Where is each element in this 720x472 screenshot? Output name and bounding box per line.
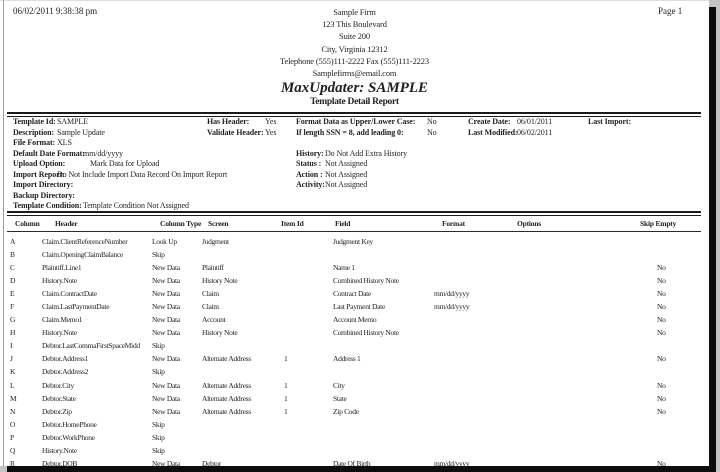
cell-column-letter: C [10,263,15,272]
cell-header: Claim.Memo1 [42,315,82,324]
info-backup-directory: Backup Directory: [13,191,75,200]
info-value: Template Condition Not Assigned [83,201,189,210]
firm-phone-fax: Telephone (555)111-2222 Fax (555)111-222… [0,55,709,67]
cell-column-letter: O [10,420,15,429]
cell-column-letter: H [10,328,15,337]
table-row: F Claim.LastPaymentDate New Data Claim L… [0,301,709,314]
info-value: Not Assigned [325,159,367,168]
table-row: R Debtor.DOB New Data Debtor Date Of Bir… [0,458,709,471]
info-label: Create Date: [468,117,517,126]
info-template-id: Template Id:SAMPLE [13,117,88,126]
info-label: Format Data as Upper/Lower Case: [296,117,427,126]
info-value: mm/dd/yyyy [83,149,123,158]
table-row: O Debtor.HomePhone Skip [0,419,709,432]
table-row: E Claim.ContractDate New Data Claim Cont… [0,288,709,301]
col-header-options: Options [517,219,541,228]
info-value: No [427,117,437,126]
info-label: Has Header: [207,117,265,126]
cell-screen: History Note [202,328,237,337]
cell-header: Debtor.State [42,394,76,403]
cell-header: Claim.OpeningClaimBalance [42,250,123,259]
cell-screen: Alternate Address [202,354,251,363]
cell-screen: Alternate Address [202,407,251,416]
info-label: History: [296,149,325,158]
cell-header: History.Note [42,446,77,455]
cell-screen: History Note [202,276,237,285]
cell-header: Debtor.Address2 [42,367,88,376]
info-value: 06/01/2011 [517,117,552,126]
info-label: Last Import: [588,117,631,126]
cell-field: Combined History Note [333,276,399,285]
table-row: A Claim.ClientReferenceNumber Look Up Ju… [0,236,709,249]
page-top-edge [0,0,709,1]
info-label: Validate Header: [207,128,265,137]
cell-column-letter: F [10,302,14,311]
cell-header: Debtor.WorkPhone [42,433,95,442]
info-has-header: Has Header:Yes [207,117,276,126]
table-row: L Debtor.City New Data Alternate Address… [0,380,709,393]
cell-field: Last Payment Date [333,302,385,311]
info-value: Do Not Include Import Data Record On Imp… [57,170,227,179]
table-row: J Debtor.Address1 New Data Alternate Add… [0,353,709,366]
cell-column-letter: E [10,289,14,298]
cell-column-type: New Data [152,328,180,337]
info-label: Status : [296,159,325,168]
col-header-header: Header [55,219,78,228]
info-upload-option: Upload Option:Mark Data for Upload [13,159,159,168]
info-template-condition: Template Condition:Template Condition No… [13,201,189,210]
cell-field: Combined History Note [333,328,399,337]
cell-header: Debtor.City [42,381,74,390]
cell-column-letter: I [10,341,12,350]
cell-column-type: New Data [152,394,180,403]
info-value: No [427,128,437,137]
cell-format: mm/dd/yyyy [434,289,469,298]
col-header-field: Field [335,219,350,228]
info-label: Last Modified: [468,128,517,137]
cell-field: Zip Code [333,407,359,416]
cell-column-type: New Data [152,381,180,390]
cell-header: History.Note [42,276,77,285]
table-row: G Claim.Memo1 New Data Account Account M… [0,314,709,327]
info-status: Status :Not Assigned [296,159,367,168]
info-value: 06/02/2011 [517,128,552,137]
cell-header: Claim.LastPaymentDate [42,302,109,311]
info-label: Backup Directory: [13,191,75,200]
cell-column-type: New Data [152,315,180,324]
cell-column-type: New Data [152,354,180,363]
cell-item-id: 1 [284,381,287,390]
info-label: Import Report: [13,170,57,179]
info-file-format: File Format:XLS [13,138,72,147]
firm-address-block: Sample Firm 123 This Boulevard Suite 200… [0,6,709,79]
cell-column-type: New Data [152,263,180,272]
cell-skip-empty: No [657,381,666,390]
divider-under-table-header [7,231,701,232]
info-label: If length SSN = 8, add leading 0: [296,128,427,137]
cell-column-letter: Q [10,446,15,455]
info-value: Yes [265,117,276,126]
cell-column-type: Look Up [152,237,177,246]
cell-header: Debtor.Zip [42,407,72,416]
cell-screen: Plaintiff [202,263,224,272]
info-ssn-leading-zero: If length SSN = 8, add leading 0:No [296,128,437,137]
info-value: Not Assigned [325,180,367,189]
table-row: B Claim.OpeningClaimBalance Skip [0,249,709,262]
cell-column-letter: K [10,367,15,376]
cell-column-type: Skip [152,341,165,350]
report-page: 06/02/2011 9:38:38 pm Page 1 Sample Firm… [0,0,709,466]
cell-format: mm/dd/yyyy [434,459,469,468]
info-last-import: Last Import: [588,117,631,126]
table-row: N Debtor.Zip New Data Alternate Address … [0,406,709,419]
cell-skip-empty: No [657,315,666,324]
cell-column-type: Skip [152,420,165,429]
cell-column-type: Skip [152,446,165,455]
cell-header: Debtor.DOB [42,459,77,468]
cell-item-id: 1 [284,407,287,416]
report-subtitle: Template Detail Report [0,97,709,107]
firm-address-line1: 123 This Boulevard [0,18,709,30]
info-create-date: Create Date:06/01/2011 [468,117,552,126]
firm-email: Samplefirms@email.com [0,67,709,79]
col-header-screen: Screen [208,219,228,228]
cell-header: History.Note [42,328,77,337]
cell-column-type: Skip [152,433,165,442]
cell-header: Debtor.HomePhone [42,420,97,429]
cell-column-letter: L [10,381,14,390]
cell-skip-empty: No [657,276,666,285]
template-column-table: A Claim.ClientReferenceNumber Look Up Ju… [0,236,709,471]
info-history: History:Do Not Add Extra History [296,149,407,158]
table-row: H History.Note New Data History Note Com… [0,327,709,340]
table-row: Q History.Note Skip [0,445,709,458]
cell-screen: Claim [202,302,219,311]
info-label: Activity: [296,180,325,189]
cell-column-letter: B [10,250,15,259]
cell-column-letter: P [10,433,14,442]
info-description: Description:Sample Update [13,128,105,137]
info-label: Action : [296,170,325,179]
table-row: P Debtor.WorkPhone Skip [0,432,709,445]
cell-column-type: New Data [152,289,180,298]
cell-skip-empty: No [657,407,666,416]
cell-screen: Account [202,315,225,324]
table-row: I Debtor.LastCommaFirstSpaceMidd Skip [0,340,709,353]
cell-header: Debtor.Address1 [42,354,88,363]
cell-screen: Alternate Address [202,381,251,390]
table-row: M Debtor.State New Data Alternate Addres… [0,393,709,406]
cell-column-letter: R [10,459,15,468]
info-label: Template Condition: [13,201,83,210]
cell-skip-empty: No [657,394,666,403]
cell-screen: Debtor [202,459,221,468]
cell-field: Judgment Key [333,237,373,246]
info-value: Yes [265,128,276,137]
cell-column-letter: G [10,315,15,324]
info-default-date-format: Default Date Format:mm/dd/yyyy [13,149,123,158]
cell-field: Date Of Birth [333,459,370,468]
cell-field: Name 1 [333,263,355,272]
info-value: Not Assigned [325,170,367,179]
cell-column-letter: M [10,394,16,403]
cell-skip-empty: No [657,302,666,311]
cell-column-type: Skip [152,250,165,259]
divider-above-table [7,211,701,216]
cell-screen: Claim [202,289,219,298]
cell-column-letter: J [10,354,13,363]
info-value: Do Not Add Extra History [325,149,407,158]
firm-city-state-zip: City, Virginia 12312 [0,43,709,55]
table-row: K Debtor.Address2 Skip [0,366,709,379]
info-label: Upload Option: [13,159,90,168]
info-validate-header: Validate Header:Yes [207,128,276,137]
info-label: Default Date Format: [13,149,83,158]
info-format-case: Format Data as Upper/Lower Case:No [296,117,437,126]
info-last-modified: Last Modified:06/02/2011 [468,128,552,137]
info-import-directory: Import Directory: [13,180,73,189]
cell-skip-empty: No [657,289,666,298]
cell-header: Claim.ClientReferenceNumber [42,237,127,246]
cell-column-letter: N [10,407,15,416]
cell-column-type: New Data [152,407,180,416]
info-import-report: Import Report:Do Not Include Import Data… [13,170,227,179]
cell-field: Contract Date [333,289,371,298]
col-header-skip-empty: Skip Empty [640,219,676,228]
cell-column-type: New Data [152,302,180,311]
cell-column-type: New Data [152,276,180,285]
col-header-column-type: Column Type [160,219,201,228]
cell-skip-empty: No [657,459,666,468]
cell-column-type: Skip [152,367,165,376]
info-value: SAMPLE [57,117,88,126]
cell-field: Account Memo [333,315,376,324]
cell-column-type: New Data [152,459,180,468]
info-value: XLS [57,138,72,147]
info-value: Sample Update [57,128,105,137]
info-label: Template Id: [13,117,57,126]
info-action: Action :Not Assigned [296,170,367,179]
firm-name: Sample Firm [0,6,709,18]
info-activity: Activity:Not Assigned [296,180,367,189]
cell-field: State [333,394,347,403]
cell-format: mm/dd/yyyy [434,302,469,311]
cell-skip-empty: No [657,354,666,363]
cell-field: City [333,381,345,390]
info-value: Mark Data for Upload [90,159,159,168]
table-row: D History.Note New Data History Note Com… [0,275,709,288]
cell-screen: Judgment [202,237,229,246]
info-label: Description: [13,128,57,137]
cell-column-letter: D [10,276,15,285]
cell-header: Debtor.LastCommaFirstSpaceMidd [42,341,140,350]
cell-skip-empty: No [657,263,666,272]
col-header-column: Column [15,219,40,228]
table-row: C Plaintiff.Line1 New Data Plaintiff Nam… [0,262,709,275]
cell-field: Address 1 [333,354,361,363]
report-title: MaxUpdater: SAMPLE [0,80,709,97]
col-header-item-id: Item Id [281,219,304,228]
col-header-format: Format [442,219,465,228]
info-label: Import Directory: [13,180,73,189]
cell-item-id: 1 [284,354,287,363]
info-label: File Format: [13,138,57,147]
cell-screen: Alternate Address [202,394,251,403]
cell-item-id: 1 [284,394,287,403]
cell-column-letter: A [10,237,15,246]
firm-address-line2: Suite 200 [0,30,709,42]
cell-header: Claim.ContractDate [42,289,97,298]
cell-skip-empty: No [657,328,666,337]
cell-header: Plaintiff.Line1 [42,263,81,272]
